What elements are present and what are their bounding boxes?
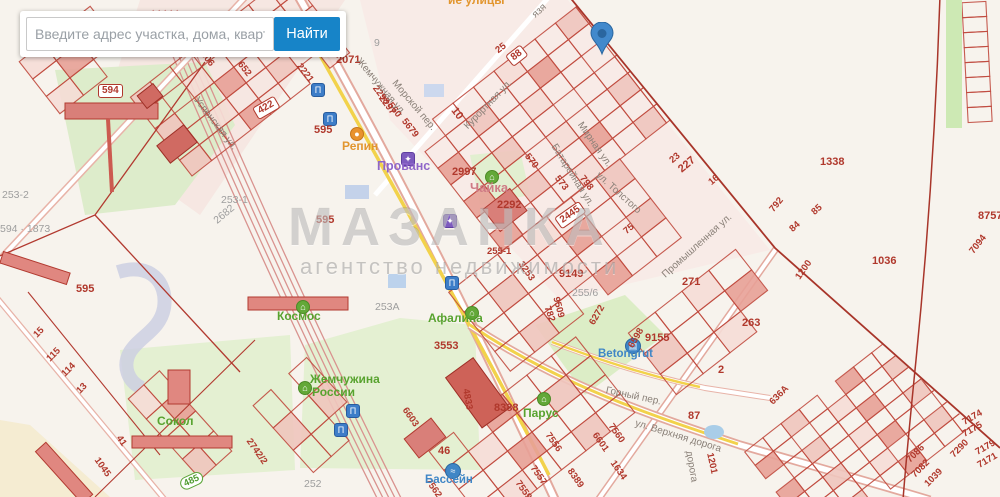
map-canvas[interactable]: ППППП⌂⌂⌂⌂⌂●✦✦▤≈ 207194066522221422594229… xyxy=(0,0,1000,497)
search-bar: Найти xyxy=(20,11,346,57)
search-button[interactable]: Найти xyxy=(274,17,340,51)
map-render xyxy=(0,0,1000,497)
map-pin-icon xyxy=(589,22,615,56)
map-marker[interactable] xyxy=(589,22,615,56)
search-input[interactable] xyxy=(26,17,274,51)
